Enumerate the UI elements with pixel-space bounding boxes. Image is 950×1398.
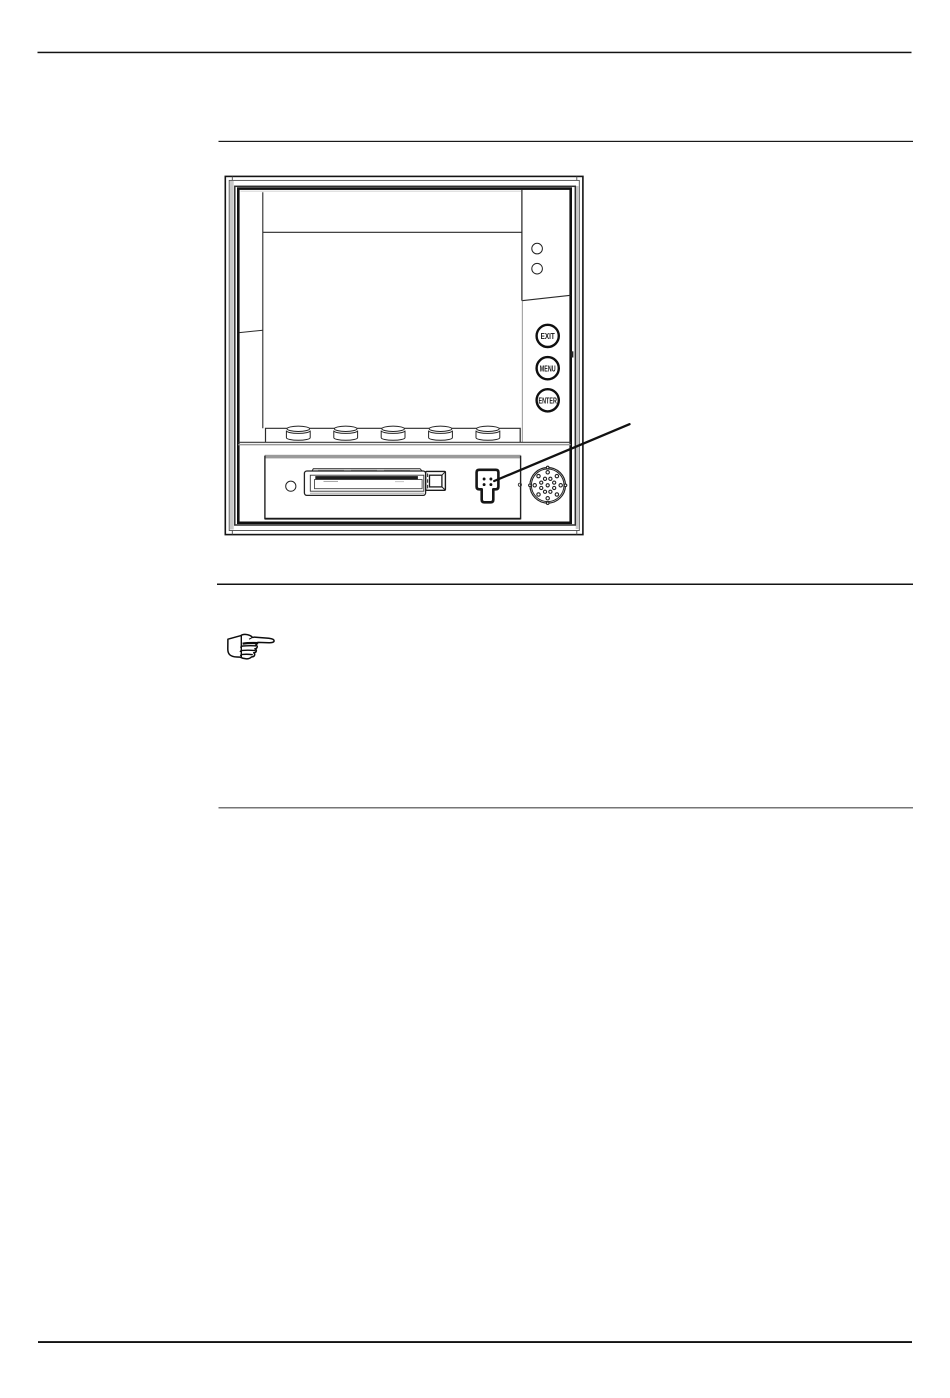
svg-text:EXIT: EXIT	[541, 331, 556, 341]
svg-text:MENU: MENU	[540, 363, 556, 373]
svg-text:ENTER: ENTER	[539, 395, 558, 405]
